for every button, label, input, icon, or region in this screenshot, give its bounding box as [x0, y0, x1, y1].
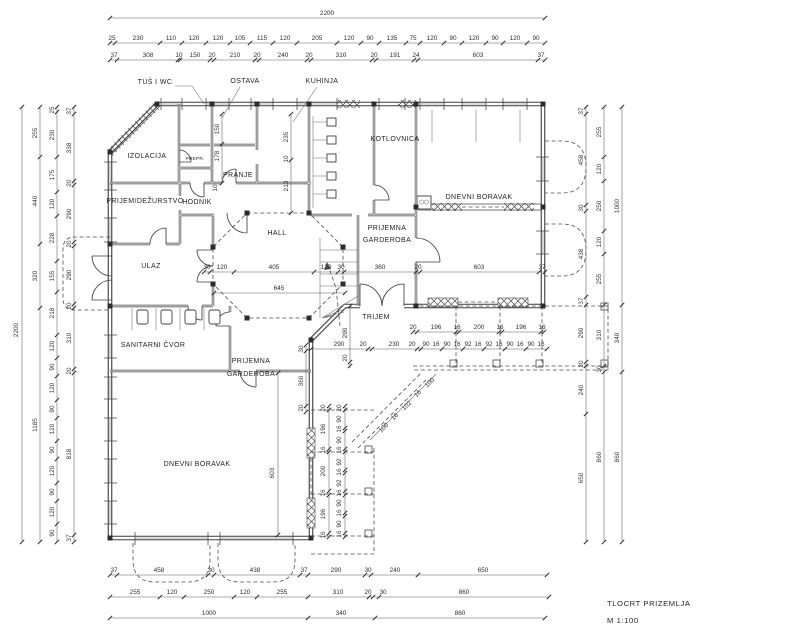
svg-text:20: 20: [253, 52, 261, 59]
svg-text:30: 30: [364, 567, 372, 574]
svg-text:25: 25: [108, 35, 116, 42]
dim-hall-total: 645: [274, 285, 285, 292]
floor-plan-page: 2200 25230110120120105115120205120901357…: [0, 0, 800, 640]
svg-text:16: 16: [538, 324, 546, 331]
svg-text:92: 92: [464, 341, 472, 348]
svg-text:120: 120: [217, 264, 228, 271]
svg-text:290: 290: [66, 208, 73, 219]
svg-text:120: 120: [49, 198, 56, 209]
shutter-east-1: [545, 141, 586, 193]
svg-text:90: 90: [336, 520, 343, 528]
svg-text:20: 20: [414, 264, 422, 271]
svg-text:230: 230: [49, 129, 56, 140]
svg-text:338: 338: [66, 142, 73, 153]
tus-door: [190, 183, 204, 197]
svg-text:603: 603: [474, 264, 485, 271]
svg-text:213: 213: [283, 180, 290, 191]
svg-text:30: 30: [578, 204, 585, 212]
room-label-garderoba2a: PRIJEMNA: [232, 358, 271, 365]
room-label-dnevni-dolje: DNEVNI BORAVAK: [164, 461, 231, 468]
dim-pantry: 150178: [214, 123, 221, 161]
svg-text:196: 196: [320, 423, 327, 434]
svg-text:120: 120: [49, 465, 56, 476]
svg-text:308: 308: [143, 52, 154, 59]
svg-text:90: 90: [336, 436, 343, 444]
dim-top-row2: 2523011012012010511512020512090135751209…: [108, 35, 540, 42]
svg-text:90: 90: [506, 341, 514, 348]
svg-text:818: 818: [66, 448, 73, 459]
dim-left-row2: 2554403201185: [32, 127, 39, 432]
svg-text:16: 16: [336, 425, 343, 433]
dim-left-row3: 2523017512022815521812090120901209012090…: [49, 106, 56, 537]
svg-text:115: 115: [257, 35, 268, 42]
svg-text:16: 16: [336, 446, 343, 454]
svg-text:240: 240: [578, 384, 585, 395]
svg-text:20: 20: [578, 360, 585, 368]
svg-text:30: 30: [203, 264, 211, 271]
kotlovnica-door: [374, 185, 389, 200]
svg-text:90: 90: [527, 341, 535, 348]
svg-text:16: 16: [336, 530, 343, 538]
svg-text:120: 120: [49, 382, 56, 393]
dim-hodnik: 10: [212, 184, 219, 192]
svg-text:30: 30: [298, 345, 305, 353]
svg-text:196: 196: [320, 508, 327, 519]
svg-text:120: 120: [321, 264, 332, 271]
svg-text:438: 438: [250, 567, 261, 574]
room-label-hall: HALL: [267, 230, 286, 237]
svg-text:16: 16: [390, 412, 400, 422]
svg-text:92: 92: [336, 458, 343, 466]
svg-text:340: 340: [614, 332, 621, 343]
svg-text:191: 191: [390, 52, 401, 59]
staircase: [320, 238, 358, 326]
svg-text:16: 16: [320, 446, 327, 454]
svg-text:75: 75: [409, 35, 417, 42]
svg-text:16: 16: [453, 324, 461, 331]
svg-text:120: 120: [596, 163, 603, 174]
svg-text:650: 650: [578, 472, 585, 483]
svg-text:90: 90: [422, 341, 430, 348]
svg-text:310: 310: [66, 332, 73, 343]
svg-text:37: 37: [578, 297, 585, 305]
svg-text:1185: 1185: [32, 418, 39, 432]
svg-text:37: 37: [538, 264, 546, 271]
room-label-garderoba1a: PRIJEMNA: [368, 225, 407, 232]
svg-text:37: 37: [537, 52, 545, 59]
room-label-pranje: PRANJE: [223, 172, 253, 179]
svg-text:16: 16: [413, 389, 423, 399]
dim-left-row4: 373382029020290203102081837: [66, 107, 73, 542]
svg-text:16: 16: [432, 341, 440, 348]
svg-text:20: 20: [66, 367, 73, 375]
svg-text:90: 90: [49, 446, 56, 454]
svg-text:20: 20: [408, 341, 416, 348]
svg-text:2200: 2200: [320, 10, 335, 17]
svg-text:120: 120: [49, 506, 56, 517]
dim-top-total: 2200: [320, 10, 335, 17]
dim-garderoba: 3036020: [298, 345, 305, 412]
room-label-dnevni-desno: DNEVNI BORAVAK: [446, 194, 513, 201]
svg-text:90: 90: [49, 405, 56, 413]
svg-text:120: 120: [189, 35, 200, 42]
window-sills-lower-wing: [307, 428, 315, 528]
svg-text:90: 90: [491, 35, 499, 42]
svg-text:37: 37: [110, 52, 118, 59]
dim-kitchen: 23510213: [283, 131, 290, 191]
svg-text:250: 250: [204, 589, 215, 596]
svg-text:30: 30: [379, 589, 387, 596]
drawing-scale: M 1:100: [607, 616, 639, 625]
room-label-prepr: PREPR.: [185, 156, 204, 162]
dim-diagonal: 1001610216100: [378, 376, 437, 434]
svg-text:20: 20: [370, 52, 378, 59]
svg-text:250: 250: [596, 200, 603, 211]
svg-text:603: 603: [269, 467, 276, 478]
svg-text:255: 255: [596, 126, 603, 137]
svg-text:155: 155: [49, 270, 56, 281]
svg-text:230: 230: [389, 341, 400, 348]
svg-text:16: 16: [336, 489, 343, 497]
svg-text:320: 320: [32, 270, 39, 281]
svg-text:218: 218: [49, 307, 56, 318]
svg-text:178: 178: [214, 150, 221, 161]
svg-text:240: 240: [390, 567, 401, 574]
svg-text:20: 20: [359, 341, 367, 348]
svg-text:20: 20: [409, 324, 417, 331]
living-room-door: [416, 238, 440, 262]
svg-text:200: 200: [320, 465, 327, 476]
svg-text:10: 10: [283, 155, 290, 163]
svg-text:110: 110: [166, 35, 177, 42]
svg-text:16: 16: [336, 509, 343, 517]
svg-text:16: 16: [336, 468, 343, 476]
dim-left-total: 2200: [13, 322, 20, 337]
svg-text:120: 120: [167, 589, 178, 596]
room-label-garderoba1b: GARDEROBA: [363, 237, 411, 244]
svg-text:120: 120: [469, 35, 480, 42]
svg-text:90: 90: [49, 363, 56, 371]
svg-text:310: 310: [596, 329, 603, 340]
svg-text:405: 405: [269, 264, 280, 271]
svg-text:20: 20: [305, 52, 313, 59]
svg-text:135: 135: [387, 35, 398, 42]
svg-text:860: 860: [596, 451, 603, 462]
dim-hall-row: 30120405120303602060337: [203, 264, 546, 271]
svg-text:16: 16: [495, 341, 503, 348]
svg-text:196: 196: [431, 324, 442, 331]
svg-text:37: 37: [66, 107, 73, 115]
svg-text:235: 235: [283, 131, 290, 142]
svg-text:10: 10: [175, 52, 183, 59]
svg-text:205: 205: [312, 35, 323, 42]
dim-terrace-right-row2: 901690169216921690169016: [422, 341, 545, 348]
svg-text:10: 10: [212, 184, 219, 192]
trijem-door-leaf: [382, 284, 404, 306]
floor-plan-drawing: 2200 25230110120120105115120205120901357…: [0, 0, 800, 640]
svg-text:105: 105: [235, 35, 246, 42]
svg-text:860: 860: [614, 451, 621, 462]
svg-text:645: 645: [274, 285, 285, 292]
room-label-tus-wc: TUŠ I WC: [138, 77, 173, 86]
svg-text:230: 230: [133, 35, 144, 42]
svg-text:310: 310: [333, 589, 344, 596]
svg-text:360: 360: [298, 375, 305, 386]
svg-text:92: 92: [485, 341, 493, 348]
svg-text:1000: 1000: [202, 610, 217, 617]
svg-text:16: 16: [453, 341, 461, 348]
svg-text:228: 228: [49, 232, 56, 243]
room-label-hodnik: HODNIK: [182, 199, 212, 206]
trijem-door-leaf: [360, 284, 382, 306]
kitchen-shelving: [313, 116, 336, 208]
svg-text:200: 200: [474, 324, 485, 331]
svg-text:255: 255: [277, 589, 288, 596]
svg-text:20: 20: [342, 354, 349, 362]
dim-living: 603: [269, 467, 276, 478]
svg-text:120: 120: [49, 423, 56, 434]
svg-text:90: 90: [336, 415, 343, 423]
outer-wall-north-east: [110, 104, 543, 306]
svg-text:603: 603: [473, 52, 484, 59]
room-label-ulaz: ULAZ: [141, 263, 161, 270]
svg-text:20: 20: [66, 302, 73, 310]
svg-text:16: 16: [474, 341, 482, 348]
svg-text:30: 30: [207, 567, 215, 574]
svg-text:120: 120: [596, 236, 603, 247]
insulated-corner-wall: [107, 101, 161, 156]
svg-text:24: 24: [412, 52, 420, 59]
svg-text:120: 120: [280, 35, 291, 42]
svg-text:120: 120: [344, 35, 355, 42]
svg-text:100: 100: [378, 421, 391, 434]
svg-text:16: 16: [537, 341, 545, 348]
svg-text:16: 16: [320, 531, 327, 539]
svg-text:1000: 1000: [614, 198, 621, 213]
svg-text:16: 16: [320, 489, 327, 497]
svg-text:290: 290: [331, 567, 342, 574]
awning-south-2: [218, 543, 295, 582]
svg-text:120: 120: [510, 35, 521, 42]
svg-text:90: 90: [366, 35, 374, 42]
svg-text:30: 30: [337, 264, 345, 271]
svg-text:210: 210: [230, 52, 241, 59]
svg-text:290: 290: [66, 269, 73, 280]
room-label-izolacija: IZOLACIJA: [128, 153, 167, 160]
dim-bottom-row2: 2551202501202553102030860: [130, 589, 470, 596]
svg-text:90: 90: [532, 35, 540, 42]
room-label-kuhinja: KUHINJA: [306, 78, 339, 85]
svg-text:120: 120: [213, 35, 224, 42]
terrace-diagonal-edge: [352, 372, 428, 448]
parapet-wall: [418, 203, 541, 211]
dim-labels: 2200 25230110120120105115120205120901357…: [13, 10, 621, 617]
svg-text:175: 175: [49, 169, 56, 180]
svg-text:458: 458: [578, 154, 585, 165]
svg-text:20: 20: [298, 404, 305, 412]
svg-text:150: 150: [214, 123, 221, 134]
dim-right-inner: 37458304383729020240650: [578, 107, 585, 483]
svg-text:120: 120: [427, 35, 438, 42]
svg-text:290: 290: [334, 341, 345, 348]
dim-terrace-bottom-col2: 20901690169216921690169016: [336, 404, 343, 538]
room-label-ostava: OSTAVA: [230, 78, 259, 85]
svg-text:290: 290: [342, 327, 349, 338]
svg-text:20: 20: [336, 404, 343, 412]
svg-text:16: 16: [496, 324, 504, 331]
svg-text:150: 150: [190, 52, 201, 59]
dim-bottom-row1: 37458304383729030240650: [110, 567, 488, 574]
svg-text:360: 360: [375, 264, 386, 271]
awning-south-1: [133, 543, 210, 582]
svg-text:90: 90: [336, 499, 343, 507]
svg-text:120: 120: [49, 340, 56, 351]
svg-text:255: 255: [130, 589, 141, 596]
svg-text:860: 860: [459, 589, 470, 596]
room-label-garderoba2b: GARDEROBA: [227, 371, 275, 378]
dim-terrace-right-row1: 20196162001619616: [409, 324, 546, 331]
svg-text:20: 20: [208, 52, 216, 59]
svg-text:240: 240: [278, 52, 289, 59]
svg-text:255: 255: [32, 127, 39, 138]
svg-text:20: 20: [66, 240, 73, 248]
svg-text:90: 90: [449, 35, 457, 42]
svg-text:102: 102: [401, 399, 414, 412]
svg-text:438: 438: [578, 248, 585, 259]
stove-icon: [417, 196, 431, 209]
svg-text:20: 20: [364, 589, 372, 596]
svg-text:16: 16: [516, 341, 524, 348]
svg-text:20: 20: [66, 179, 73, 187]
drawing-title: TLOCRT PRIZEMLJA: [607, 599, 691, 608]
svg-text:290: 290: [578, 327, 585, 338]
svg-text:340: 340: [336, 610, 347, 617]
svg-text:650: 650: [478, 567, 489, 574]
svg-text:860: 860: [455, 610, 466, 617]
svg-text:100: 100: [424, 376, 437, 389]
prijem-door: [150, 228, 166, 244]
svg-text:37: 37: [110, 567, 118, 574]
svg-text:90: 90: [49, 488, 56, 496]
room-label-kotlovnica: KOTLOVNICA: [370, 136, 419, 143]
svg-text:2200: 2200: [13, 322, 20, 337]
room-label-trijem: TRIJEM: [362, 314, 390, 321]
dim-terrace-bottom-col1: 20196162001619616: [320, 404, 327, 539]
svg-text:37: 37: [66, 534, 73, 542]
dim-right-outer: 1000340860: [614, 198, 621, 462]
svg-text:458: 458: [154, 567, 165, 574]
svg-text:20: 20: [320, 404, 327, 412]
svg-text:310: 310: [336, 52, 347, 59]
svg-text:120: 120: [240, 589, 251, 596]
wc-stalls: [132, 308, 220, 330]
svg-text:255: 255: [596, 273, 603, 284]
svg-text:30: 30: [596, 365, 603, 373]
dim-top-row3: 3730810150202102024020310201912460337: [110, 52, 545, 59]
svg-text:92: 92: [336, 479, 343, 487]
svg-text:90: 90: [49, 529, 56, 537]
svg-text:196: 196: [516, 324, 527, 331]
svg-text:25: 25: [49, 106, 56, 114]
room-label-sanitarni: SANITARNI ČVOR: [121, 340, 186, 349]
dim-porch-row: 2902023020: [334, 341, 416, 348]
fixtures: [132, 116, 431, 330]
svg-text:90: 90: [443, 341, 451, 348]
svg-text:440: 440: [32, 195, 39, 206]
room-label-prijem: PRIJEM/DEŽURSTVO: [106, 196, 183, 205]
svg-text:37: 37: [300, 567, 308, 574]
title-block: TLOCRT PRIZEMLJA M 1:100: [607, 599, 691, 625]
dim-right-middle: 25512025012025531030860: [596, 126, 603, 462]
dim-bottom-row3: 1000340860: [202, 610, 466, 617]
svg-text:37: 37: [578, 107, 585, 115]
